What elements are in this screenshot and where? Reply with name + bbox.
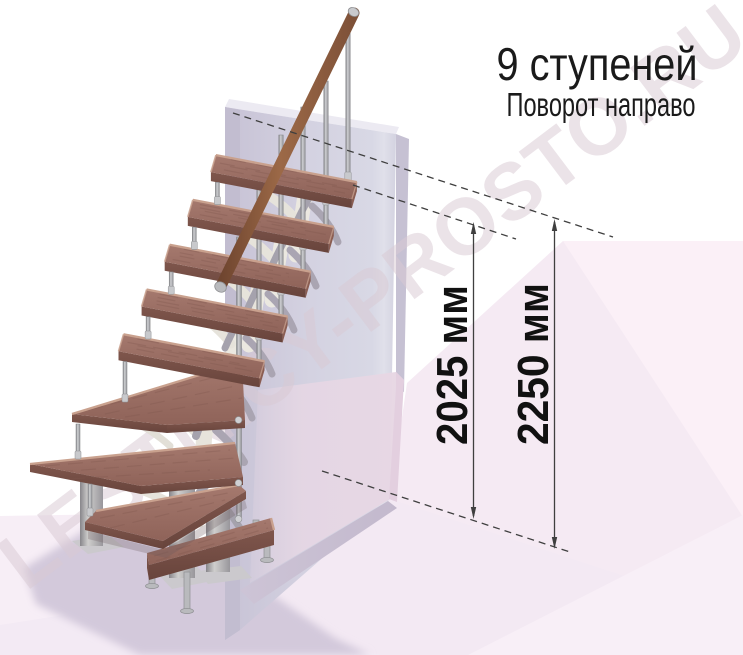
svg-text:Поворот направо: Поворот направо (507, 86, 696, 123)
svg-text:2250 мм: 2250 мм (509, 283, 558, 445)
svg-text:9 ступеней: 9 ступеней (497, 38, 698, 90)
svg-text:2025 мм: 2025 мм (428, 285, 477, 445)
